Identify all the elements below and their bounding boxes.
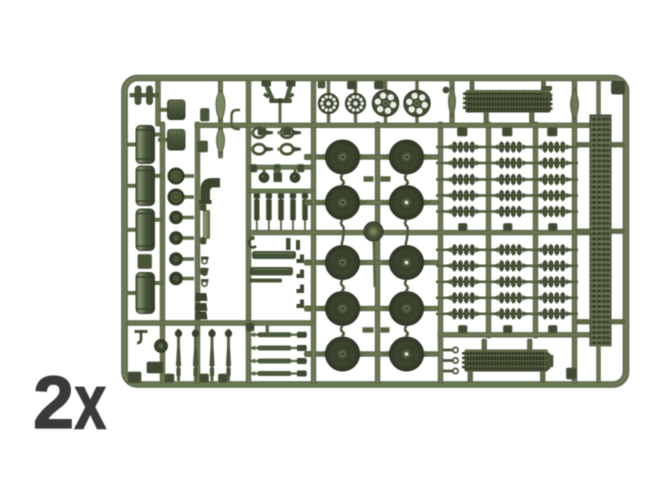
svg-text:x: x xyxy=(75,359,107,446)
svg-text:2: 2 xyxy=(33,361,74,444)
